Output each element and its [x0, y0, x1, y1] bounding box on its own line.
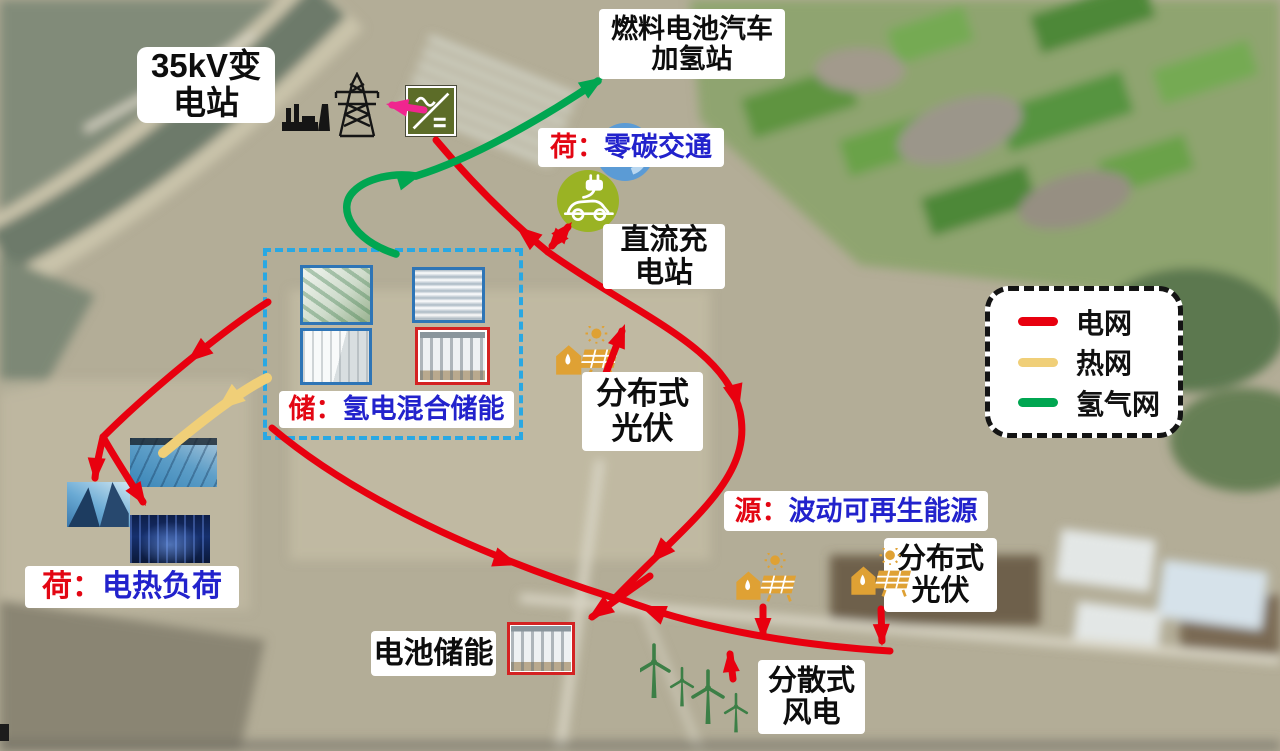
zero-carbon-label: 荷：零碳交通 — [538, 128, 724, 167]
wind-line2: 风电 — [782, 697, 840, 729]
battery-label: 电池储能 — [371, 631, 496, 676]
substation-line2: 电站 — [173, 85, 239, 122]
heat-legend-label: 热网 — [1076, 342, 1132, 382]
energy-park-diagram: H₂ — [0, 0, 1280, 751]
pool-photo — [130, 438, 217, 487]
legend: 电网 热网 氢气网 — [985, 286, 1183, 438]
legend-row-heat: 热网 — [1018, 342, 1178, 382]
wind-line1: 分散式 — [768, 665, 855, 697]
pv-house-icon-right-1 — [733, 553, 801, 603]
substation-line1: 35kV变 — [151, 48, 261, 85]
hydrogen-tanks-photo — [412, 267, 485, 323]
substation-tower-icon — [280, 72, 380, 142]
heat-load-prefix: 荷： — [42, 570, 102, 604]
pv-house-icon-right-2 — [848, 548, 916, 598]
hydrogen-station-label: 燃料电池汽车 加氢站 — [599, 9, 785, 79]
legend-row-grid: 电网 — [1018, 302, 1178, 342]
dc-charging-label: 直流充 电站 — [603, 224, 725, 289]
source-label: 源：波动可再生能源 — [724, 491, 988, 531]
pv-mid-label: 分布式 光伏 — [582, 372, 703, 451]
zero-carbon-text: 零碳交通 — [604, 132, 712, 162]
battery-text: 电池储能 — [374, 637, 494, 671]
heat-line-swatch — [1018, 358, 1058, 367]
pv-mid-line2: 光伏 — [612, 412, 674, 447]
heat-load-text: 电热负荷 — [102, 570, 222, 604]
hydrogen-station-line1: 燃料电池汽车 — [611, 14, 773, 44]
substation-label: 35kV变 电站 — [137, 47, 275, 123]
grid-legend-label: 电网 — [1076, 302, 1132, 342]
pv-right-line2: 光伏 — [911, 575, 969, 607]
battery-storage-photo-inner — [511, 626, 571, 671]
electrolyzer-photo — [300, 265, 373, 325]
dc-charging-line2: 电站 — [635, 257, 693, 289]
hydrogen-legend-label: 氢气网 — [1076, 383, 1160, 423]
hydrogen-line-swatch — [1018, 398, 1058, 407]
dc-charging-line1: 直流充 — [620, 224, 707, 256]
fuelcell-container-photo — [300, 328, 372, 385]
heat-load-label: 荷：电热负荷 — [25, 566, 239, 608]
hydrogen-station-line2: 加氢站 — [652, 44, 733, 74]
source-prefix: 源： — [735, 496, 789, 526]
grid-line-swatch — [1018, 317, 1058, 326]
storage-text: 氢电混合储能 — [343, 394, 505, 424]
source-text: 波动可再生能源 — [789, 496, 978, 526]
datacenter-photo — [130, 515, 210, 563]
legend-row-hydrogen: 氢气网 — [1018, 383, 1178, 423]
storage-label: 储：氢电混合储能 — [279, 391, 514, 428]
wind-label: 分散式 风电 — [758, 660, 865, 734]
zero-carbon-prefix: 荷： — [550, 132, 604, 162]
map-edge-artifact — [0, 724, 9, 741]
pv-house-icon-mid — [552, 326, 624, 378]
battery-container-photo — [415, 327, 490, 385]
wind-turbine-icons — [640, 636, 770, 736]
pv-mid-line1: 分布式 — [596, 377, 689, 412]
converter-icon — [406, 86, 456, 136]
office-towers-photo — [67, 482, 130, 527]
storage-prefix: 储： — [289, 394, 343, 424]
ev-charging-icon — [557, 170, 619, 232]
